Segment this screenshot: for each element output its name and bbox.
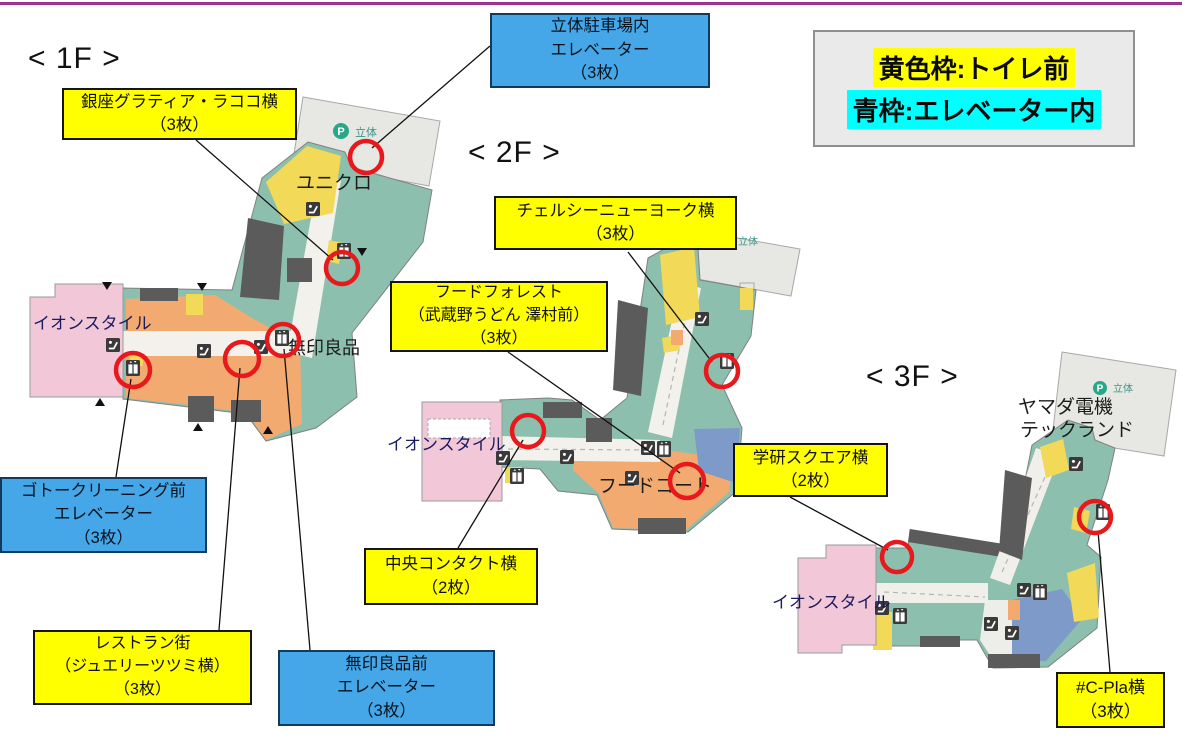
store-label-aeon-2f: イオンスタイル [387, 435, 506, 454]
store-block [188, 396, 214, 422]
callout-ginza-gratia: 銀座グラティア・ラココ横 （3枚） [62, 88, 297, 140]
callout-line: チェルシーニューヨーク横 [517, 200, 715, 223]
legend-box: 黄色枠:トイレ前 青枠:エレベーター内 [813, 30, 1135, 147]
escalator-icon [306, 202, 320, 216]
callout-line: エレベーター [54, 503, 153, 526]
parking-label-1f: 立体 [355, 125, 377, 139]
store-block [638, 518, 686, 534]
callout-line: （3枚） [114, 679, 171, 702]
callout-goto-cleaning-elevator: ゴトークリーニング前 エレベーター （3枚） [0, 477, 207, 553]
callout-line: （3枚） [150, 114, 209, 137]
store-label-yamada-2: テックランド [1020, 419, 1134, 441]
callout-line: （3枚） [471, 328, 528, 351]
connector-line [790, 497, 888, 550]
floor-title-2f: < 2F > [468, 136, 561, 170]
callout-line: （3枚） [586, 223, 645, 246]
callout-line: 銀座グラティア・ラココ横 [81, 91, 278, 114]
connector-line [1098, 531, 1110, 672]
corridor-2f-lower [500, 436, 660, 462]
store-block [186, 294, 203, 315]
floor-title-3f: < 3F > [866, 360, 959, 394]
callout-restaurant-street: レストラン街 （ジュエリーツツミ横） （3枚） [33, 630, 252, 705]
escalator-icon [106, 338, 120, 352]
entrance-arrow [193, 423, 203, 431]
elevator-icon [657, 441, 671, 457]
elevator-icon [275, 330, 289, 346]
store-label-uniqlo: ユニクロ [296, 172, 372, 194]
callout-line: ゴトークリーニング前 [21, 480, 186, 503]
callout-line: （2枚） [781, 470, 840, 493]
store-block [240, 218, 284, 300]
callout-line: （3枚） [571, 62, 630, 85]
callout-muji-elevator: 無印良品前 エレベーター （3枚） [278, 650, 495, 726]
callout-line: エレベーター [337, 676, 436, 699]
callout-line: エレベーター [551, 39, 650, 62]
escalator-icon [1017, 583, 1031, 597]
elevator-icon [126, 360, 140, 376]
floor-map-3f: P 立体 [772, 352, 1176, 668]
floor-title-1f: < 1F > [28, 42, 121, 76]
callout-chuo-contact: 中央コンタクト横 （2枚） [364, 548, 538, 605]
parking-p-letter-3f: P [1097, 384, 1104, 395]
callout-food-forest: フードフォレスト （武蔵野うどん 澤村前） （3枚） [390, 281, 608, 352]
callout-chelsea-newyork: チェルシーニューヨーク横 （3枚） [494, 196, 737, 250]
callout-line: （3枚） [357, 700, 416, 723]
store-block [140, 288, 178, 301]
store-block [740, 288, 753, 310]
callout-line: 立体駐車場内 [551, 15, 650, 38]
store-block [660, 247, 700, 325]
escalator-icon [197, 344, 211, 358]
callout-line: 無印良品前 [345, 653, 428, 676]
escalator-icon [641, 441, 655, 455]
escalator-icon [1005, 626, 1019, 640]
escalator-icon [1069, 457, 1083, 471]
store-block [586, 418, 612, 442]
parking-label-2f: 立体 [738, 235, 758, 248]
callout-line: 中央コンタクト横 [385, 553, 517, 576]
escalator-icon [560, 450, 574, 464]
store-block [287, 258, 312, 282]
elevator-icon [893, 608, 907, 624]
callout-line: #C-Pla横 [1076, 676, 1145, 700]
store-label-yamada-1: ヤマダ電機 [1018, 396, 1113, 418]
callout-line: （ジュエリーツツミ横） [55, 656, 230, 679]
callout-line: （3枚） [74, 527, 133, 550]
callout-line: （2枚） [422, 577, 481, 600]
callout-line: （3枚） [1080, 700, 1140, 724]
escalator-icon [695, 312, 709, 326]
store-block [988, 654, 1040, 668]
elevator-icon [510, 468, 524, 484]
callout-parking-elevator: 立体駐車場内 エレベーター （3枚） [490, 13, 710, 88]
store-block-orange [1008, 600, 1020, 620]
callout-gakken-square: 学研スクエア横 （2枚） [733, 443, 888, 497]
parking-p-letter-1f: P [337, 126, 344, 138]
escalator-icon [984, 617, 998, 631]
parking-label-3f: 立体 [1113, 382, 1133, 395]
slide-canvas: P 立体 [0, 0, 1182, 749]
callout-line: 学研スクエア横 [753, 447, 869, 470]
callout-line: レストラン街 [94, 633, 190, 656]
entrance-arrow [95, 398, 105, 406]
elevator-icon [1033, 584, 1047, 600]
legend-blue-label: 青枠:エレベーター内 [847, 90, 1102, 129]
store-label-aeon-1f: イオンスタイル [33, 314, 152, 333]
store-label-aeon-3f: イオンスタイル [772, 593, 891, 612]
corridor-3f-lower [876, 583, 988, 603]
callout-line: （武蔵野うどん 澤村前） [409, 305, 589, 328]
store-block [543, 402, 582, 418]
legend-yellow-label: 黄色枠:トイレ前 [873, 48, 1076, 87]
callout-cpla: #C-Pla横 （3枚） [1056, 672, 1165, 728]
store-block [920, 636, 960, 647]
store-block-orange [671, 330, 683, 345]
callout-line: フードフォレスト [435, 282, 563, 305]
